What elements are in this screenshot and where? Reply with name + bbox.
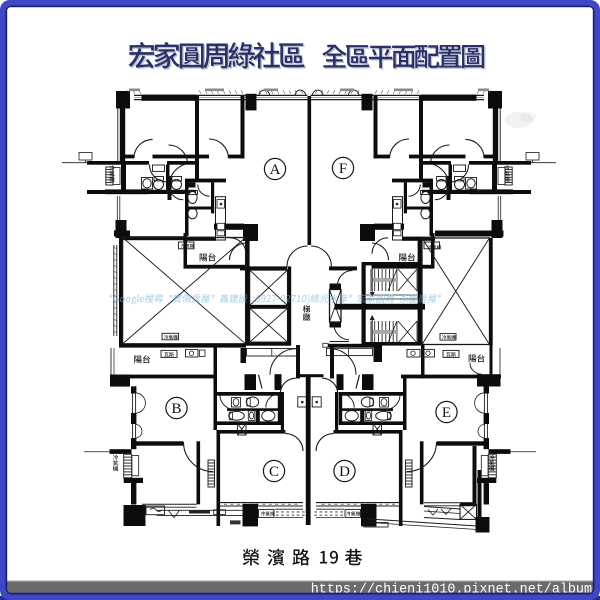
svg-text:C: C — [269, 464, 279, 480]
svg-text:E: E — [442, 405, 451, 421]
svg-text:B: B — [171, 401, 181, 417]
svg-text:F: F — [339, 161, 347, 177]
svg-text:D: D — [339, 464, 350, 480]
svg-text:A: A — [270, 162, 281, 178]
